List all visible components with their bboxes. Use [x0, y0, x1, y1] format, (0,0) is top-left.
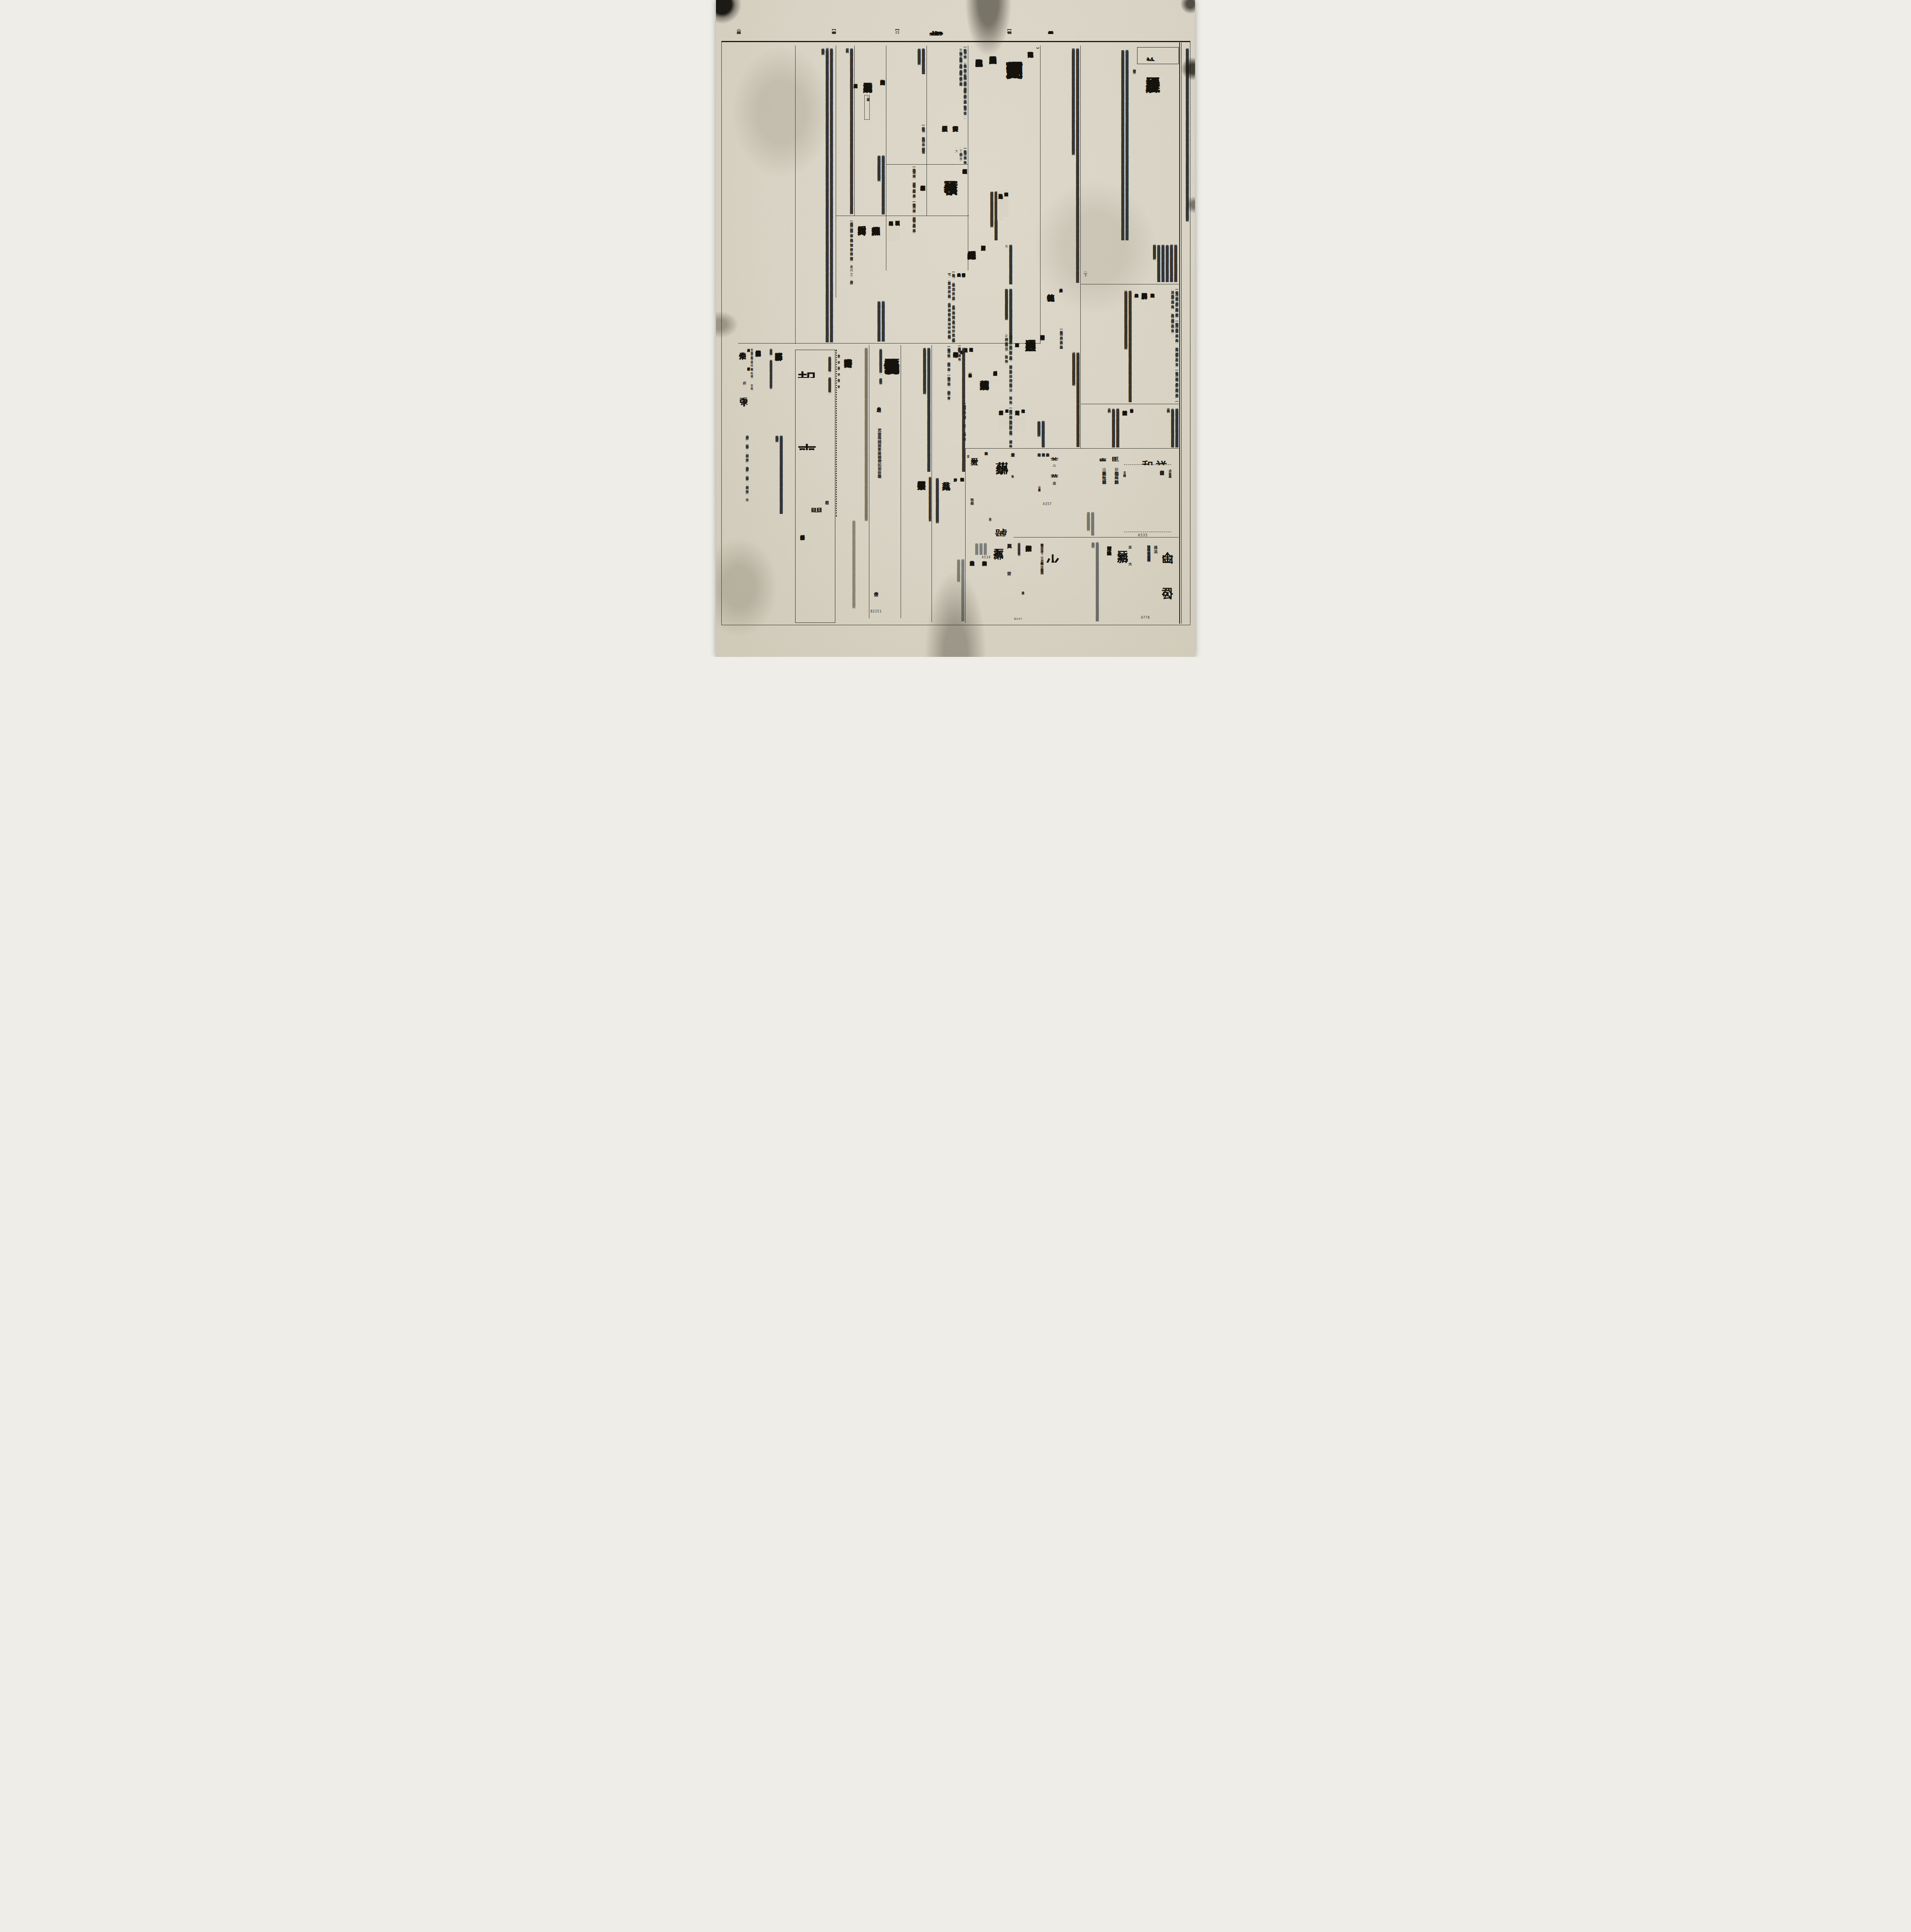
market-body: 本會舉行大贈獎……諒鑒是幸……本會舉行大贈獎……諒鑒是幸……本會舉行大贈獎……諒… [837, 352, 840, 515]
news-text: 德機昨擊落英機十架德機亦有七架失蹤前晚德機襲倫敦伯明罕及南安普敦昨晚倫敦與朴次茅… [836, 298, 885, 342]
margin-text-column: 德機昨擊落英機十架德機亦有七架失蹤前晚德機襲倫敦伯明罕及南安普敦昨晚倫敦與朴次茅… [1181, 46, 1189, 447]
editorial-label: 社論 [1143, 50, 1159, 61]
ad-sanxinchi-lines: 水汀開放 溫暖如春 [1102, 543, 1112, 612]
article-title: 兩外長將互訪問 [1140, 289, 1148, 334]
print-sale-title: 印刷機件出讓 [980, 557, 987, 621]
memorial-names: 江亢虎 溫宗堯 梅思平 褚民誼 任援道 李聖五 諸青來 趙尊嶽 樊仲雲 張韜 趙… [870, 425, 882, 584]
column-rule [927, 46, 927, 216]
column-rule [1040, 46, 1041, 344]
obituary-big-char: 報 [798, 355, 819, 378]
article-subtitle: 即成立友好條約 [1133, 291, 1139, 326]
article-title: 英掃雷艇 [949, 121, 959, 145]
article-title: 搜查輪船 [1121, 406, 1127, 432]
notice-title: 中日文化協會日語講習會招收學員 [754, 346, 761, 515]
article-kicker: 羅皇頒令 [1004, 406, 1009, 428]
ad-qing-name: 慶 [1097, 451, 1107, 461]
ad-sanxinchi-service: 盆浴 [1128, 543, 1132, 556]
article-title: 商討明年糧食 [855, 219, 867, 289]
editorial-body: 德機昨擊落英機十架德機亦有七架失蹤前晚德機襲倫敦伯明罕及南安普敦昨晚倫敦與朴次茅… [1081, 47, 1129, 240]
article-body: 【中央社柏林七日電】據海通訊、德海軍當局稱、英損失掃雷艇五艘、其名如下、易西爾號… [927, 147, 967, 164]
article-subtitle: 會戰處係在美中立水域內 [973, 53, 983, 181]
issue-number: 【第八五〇號】 [831, 28, 836, 34]
ad-xiaosuzhou-hao: 號 [993, 519, 1008, 536]
ad-xianghe-branch: 支店 中央商場內 [1122, 468, 1126, 530]
ad-taipingcun-name: 太平村 [969, 452, 979, 491]
memorial-sponsor-label: 發起人 [875, 403, 881, 423]
ad-jinshan-lines: 特聘港滬技師 特快乾洗八時交件 專洗呢毛綢緞 電話取送非常便利 地址國府路四十一… [1134, 543, 1151, 614]
article-title: 民族獨立與自由 [1020, 332, 1037, 417]
ad-ma-lines: 新 加厘牛肉包 每只二角 新鮮酥脆 [1108, 464, 1119, 536]
article-subtitle: 格林威治天文台均受損失 [956, 270, 961, 328]
ad-xianghe-rule [1124, 464, 1171, 465]
ad-lime-kicker: 興亞 [1006, 540, 1012, 562]
article-subhead: 阿境義軍 [894, 217, 900, 241]
ad-sanxinchi-service: 汽水 [1128, 560, 1132, 573]
article-title: 赴南美必失敗 [997, 190, 1003, 220]
news-text: 德機昨擊落英機十架德機亦有七架失蹤前晚德機襲倫敦伯明罕及南安普敦昨晚倫敦與朴次茅… [836, 518, 856, 621]
article-kicker: 阿爾格羅卡斯他拉城 [961, 165, 967, 215]
obituary-big-char: 喪 [798, 427, 819, 450]
article-kicker: 英經濟調查團 [1003, 189, 1008, 217]
newspaper-page: （第一張第二版） 【第八五〇號】 【日 刊】 南京新報 【星期日】 中華民國二十… [716, 0, 1195, 657]
ad-xiaosuzhou-products: 特製奶油瓜子豬油芙蓉酥蓽油米花糖松子澆切片甜心巧克力各種蓽素酥糖可可黃豆糖代售福… [979, 450, 988, 553]
ad-cuihua-small: 品 [1052, 461, 1056, 467]
article-kicker: 南匈增進友誼 [1149, 290, 1154, 325]
ad-filler: 德機昨擊落英機十架德機亦有七架失蹤前晚德機襲倫敦伯明罕及南安普敦昨晚倫敦與朴次茅… [1064, 539, 1099, 621]
ad-jinshan-code: A778 [1141, 616, 1150, 619]
notice-body: 案准江蘇省公路局業字第六九號函開案准貴縣建字第二……號及牌照各費等由查本縣毘接京… [762, 346, 772, 514]
news-text: 德機昨擊落英機十架德機亦有七架失蹤前晚德機襲倫敦伯明罕及南安普敦昨晚倫敦與朴次茅… [932, 345, 966, 472]
section-rule [1081, 404, 1179, 404]
ad-sanxinchi-name: 三新池 [1113, 543, 1129, 608]
article-body: 【羅馬七日電】據義舉行會議、商討明年糧食及原料供給問題、商業部長雷卡第、農業部長… [836, 219, 853, 295]
edition-label: （第一張第二版） [736, 28, 741, 34]
article-kicker: 通商航海條約 [878, 76, 885, 119]
ad-cuihua-name: 華 [1050, 468, 1059, 478]
column-rule [869, 345, 869, 618]
ad-xianghe-products: 加厘牛肉華洋海味松仁交切參燕銀耳蓽油米花糖四時水果透味燻魚聽裝茶葉五香牛肉香煙雪… [1126, 468, 1166, 531]
ad-jinshan-labels: 機器 洗染 [1153, 543, 1158, 580]
ad-ma-name: 馬 [1109, 451, 1119, 461]
ad-filler: 德機昨擊落英機十架德機亦有七架失蹤前晚德機襲倫敦伯明罕及南安普敦昨晚倫敦與朴次茅… [966, 540, 987, 555]
doctor-name: 秦伯未 [738, 346, 747, 376]
date-line: 中華民國二十九年十二月八日 [1047, 27, 1054, 34]
article-subtitle: 南總理在市議會演說 [1013, 340, 1019, 409]
article-kicker: 南太平洋英德海戰 [1025, 47, 1034, 102]
memorial-code: B2251 [870, 610, 882, 613]
column-rule [968, 46, 968, 270]
ad-cuihua-name: 萃 [1050, 451, 1059, 461]
ad-fire-lines: 惠顧無任歡迎 總公司：上海外灘１８號 南京：南英保泰保險公司 地址：珠江路一六〇… [1031, 541, 1044, 621]
article-subhead: 感受壓迫 [887, 217, 893, 241]
newspaper-title: 南京新報 [928, 19, 946, 36]
article-title: 已被希軍佔領 [928, 170, 959, 267]
editorial-title: 生產建設不容再緩 [1143, 66, 1163, 196]
ad-cuihua-product: 紅黑老牌威士克酒 [1041, 451, 1045, 502]
column-rule [836, 46, 836, 298]
ad-pine-intro: 茲有大批 [1020, 589, 1024, 607]
article-body: 【中央社南國京城七日電】據海通訊、南國總理第柯維支、昨日在此間市議會演說、關於國… [1003, 332, 1013, 447]
article-body: 【中央社匈京七日電】據海通訊、據「匈牙利新聞報」載稱、南外長卡柯畢最近將來訪匈、… [1155, 288, 1179, 402]
ad-xiaosuzhou-type: 茶食 [1010, 472, 1014, 485]
column-rule [932, 345, 932, 622]
ad-cuihua-small: 商店 [1052, 478, 1056, 488]
article-subtitle: 烏拉圭政府許其入港修理 [986, 50, 997, 166]
ad-xianghe-rule [1124, 532, 1171, 532]
ad-lime-name: 石灰部 [990, 541, 1004, 606]
ad-taipingcun-products: 醬鴨 醬牛肉 [966, 495, 974, 545]
news-text: 德機昨擊落英機十架德機亦有七架失蹤前晚德機襲倫敦伯明罕及南安普敦昨晚倫敦與朴次茅… [1046, 350, 1080, 447]
doctor-body: 伯未承京中友好邀診……門人張守中君從游多年……必能負所望也。張醫士診所……十八號… [738, 433, 749, 621]
doctor-mid: 介紹 [742, 379, 746, 389]
ad-xiaosuzhou-kicker: 夫子廟 [1010, 450, 1015, 470]
instruments-title: 徵買舊樂器啓事 [916, 474, 927, 616]
column-rule [901, 345, 901, 618]
obituary-signer: 孝錫堂賬房啓 [799, 531, 805, 611]
doctor-name: 張守中 [738, 391, 748, 427]
editorial-opening: 林宣傳部長五日廣播…… [1130, 66, 1136, 194]
ad-fire-name: 火 [1044, 541, 1062, 563]
section-rule [738, 343, 1040, 344]
ad-pine-title: 洋松廉價出售 [1024, 540, 1032, 588]
scan-backdrop: （第一張第二版） 【第八五〇號】 【日 刊】 南京新報 【星期日】 中華民國二十… [716, 0, 1195, 657]
ad-pine-code: B247 [1014, 617, 1022, 621]
obituary-note: 恕不另報 [824, 498, 829, 538]
article-title: 赴葡旅行 [1014, 406, 1020, 430]
news-text: 德機昨擊落英機十架德機亦有七架失蹤前晚德機襲倫敦伯明罕及南安普敦昨晚倫敦與朴次茅… [969, 189, 998, 240]
column-rule [1080, 46, 1081, 448]
article-title: 經德機分批轟炸 [965, 244, 976, 320]
article-body: 【中央社倫敦六日電】英官方今日宣佈、德巡艦一艘……（三）前晚德機襲倫敦、伯明罕及… [927, 46, 967, 119]
article-kicker: 德記者應邀 [1020, 406, 1025, 432]
ad-qing-lines: 出 瓶裝果子醬 每瓶一元 甜香酥脆 [1095, 464, 1107, 536]
ad-jinshan-name2: 公司 [1160, 579, 1174, 613]
ad-jinshan-name: 金山 [1160, 543, 1174, 577]
women-title: 女子職業福音 [968, 557, 974, 621]
ad-lime-sub: 營業 [1006, 568, 1011, 587]
section-rule [965, 448, 1179, 449]
news-text: 德機昨擊落英機十架德機亦有七架失蹤前晚德機襲倫敦伯明罕及南安普敦昨晚倫敦與朴次茅… [1136, 406, 1179, 447]
section-rule [886, 164, 968, 165]
article-title: 損失五艘 [938, 121, 948, 145]
accountant-label: 會計師 [952, 475, 957, 492]
news-text: 德機昨擊落英機十架德機亦有七架失蹤前晚德機襲倫敦伯明罕及南安普敦昨晚倫敦與朴次茅… [856, 345, 868, 621]
ad-cuihua-product: 新各色沙利文聽裝餅乾 [1045, 451, 1049, 502]
weekday-label: 【星期日】 [1007, 28, 1012, 34]
ad-xianghe-name: 祥 [1155, 451, 1168, 465]
news-text: 德機昨擊落英機十架德機亦有七架失蹤前晚德機襲倫敦伯明罕及南安普敦昨晚倫敦與朴次茅… [738, 46, 833, 342]
chen-notice-title: 陳性初啓事 [959, 474, 964, 527]
section-rule [1081, 284, 1179, 284]
memorial-title: 湯爾和先生追悼會啓事 [883, 346, 901, 614]
column-rule [886, 46, 886, 270]
ad-xianghe-name: 和 [1141, 451, 1154, 465]
article-kicker: 葡港口警察 [1129, 406, 1134, 430]
news-text: 德機昨擊落英機十架德機亦有七架失蹤前晚德機襲倫敦伯明罕及南安普敦昨晚倫敦與朴次茅… [987, 242, 1013, 284]
ad-xianghe-code: A535 [1138, 533, 1148, 537]
news-text: 德機昨擊落英機十架德機亦有七架失蹤前晚德機襲倫敦伯明罕及南安普敦昨晚倫敦與朴次茅… [1081, 406, 1120, 447]
news-text: 德機昨擊落英機十架德機亦有七架失蹤前晚德機襲倫敦伯明罕及南安普敦昨晚倫敦與朴次茅… [836, 46, 853, 214]
editorial-body: 德機昨擊落英機十架德機亦有七架失蹤前晚德機襲倫敦伯明罕及南安普敦昨晚倫敦與朴次茅… [1081, 242, 1178, 282]
news-text: 德機昨擊落英機十架德機亦有七架失蹤前晚德機襲倫敦伯明罕及南安普敦昨晚倫敦與朴次茅… [855, 153, 885, 214]
article-body: 德機昨擊落英機十架德機亦有七架失蹤前晚德機襲倫敦伯明罕及南安普敦昨晚倫敦與朴次茅… [1081, 288, 1132, 402]
article-title: 英巡艦中彈受創 [1002, 48, 1024, 185]
article-body: 【中央社柏林六日電】……三枚落於王宮技場、當局方面稱、殿幷未受損、但王族等已遭炸… [932, 270, 955, 342]
ad-xiaosuzhou-name: 小蘇州 [992, 452, 1009, 515]
article-subtitle: 一切必需品多為英沒收 [967, 371, 972, 432]
article-title: 德義使節 [1045, 288, 1055, 327]
ad-taipingcun-branch: 支店 [966, 452, 969, 466]
notice-body: 德機昨擊落英機十架德機亦有七架失蹤前晚德機襲倫敦伯明罕及南安普敦昨晚倫敦與朴次茅… [773, 433, 783, 514]
ad-filler: 德機昨擊落英機十架德機亦有七架失蹤前晚德機襲倫敦伯明罕及南安普敦昨晚倫敦與朴次茅… [1037, 509, 1095, 536]
article-title: 蘇斯已正式簽字 [860, 76, 873, 151]
notice-title: 江寧縣政府通告 [773, 346, 783, 430]
accountant-name: 葉兆昌 [940, 475, 951, 519]
article-kicker: 西外長接見 [1058, 286, 1063, 310]
news-text: 德機昨擊落英機十架德機亦有七架失蹤前晚德機襲倫敦伯明罕及南安普敦昨晚倫敦與朴次茅… [932, 556, 965, 621]
article-title: 嚴懲叛徒 [998, 406, 1003, 430]
notice-details: 報名 十二月五日起十三日止 每日上午九至十二時 下午二至五時 時間 晚六時半至八… [750, 346, 753, 514]
daily-label: 【日 刊】 [894, 28, 899, 34]
article-body: 【中央社莫斯科七日電】駐在斯洛伐克……蘇聯斯洛伐克間之通商航海條約、最初之一年中… [887, 124, 925, 163]
news-text: 德機昨擊落英機十架德機亦有七架失蹤前晚德機襲倫敦伯明罕及南安普敦昨晚倫敦與朴次茅… [887, 46, 925, 74]
article-title: 麵包店竟致停業 [973, 373, 990, 447]
article-kicker: 南國激烈地震 [968, 345, 973, 377]
article-subtitle: 希軍仍續向北段進展 [918, 182, 925, 263]
section-rule [1013, 537, 1179, 537]
ad-cuihua-code: A357 [1043, 502, 1052, 506]
zigzag-divider: 〉〉〉〉〉〉〉〉〉〉〉〉〉〉〉〉〉〉〉〉〉〉〉〉〉〉〉〉〉〉〉〉〉〉〉〉〉〉〉〉… [1035, 46, 1040, 191]
article-kicker: 埃及缺乏之食糧煤斤 [991, 368, 997, 426]
memorial-body: 華北政務委員會常務委員兼教育總署督辦湯爾和先生頃於本年公忠體國辛亥翊贊共和厥功尤… [870, 346, 883, 401]
article-kicker: 南國主要目標 [1038, 332, 1045, 369]
article-title: 義首腦部會議 [869, 219, 881, 289]
market-title: 中央商場廠商聯合會啓事 [841, 352, 853, 515]
article-subtitle: 倫敦西郊溫莎宮中彈三枚 [961, 270, 966, 328]
article-kicker: 英樸資茅斯軍港 [979, 242, 986, 284]
news-text: 德機昨擊落英機十架德機亦有七架失蹤前晚德機襲倫敦伯明罕及南安普敦昨晚倫敦與朴次茅… [901, 345, 931, 472]
editorial-end-mark: （下） [1082, 270, 1088, 281]
instruments-side: 德機昨擊落英機十架德機亦有七架失蹤前晚德機襲倫敦伯明罕及南安普敦昨晚倫敦與朴次茅… [927, 474, 932, 616]
memorial-closing: 全啓 [873, 588, 879, 601]
obituary-wen-char: 聞 [810, 498, 823, 512]
ad-pine-body: 洋松大小自三寸六寸起至八寸十六寸止長短自數尺起至七十餘尺止分批廉價出售用戶請駕至… [1013, 540, 1020, 616]
ad-xianghe-store: 總店 中華路 電話二三二八九一 [1167, 467, 1171, 536]
accountant-text: 德機昨擊落英機十架德機亦有七架失蹤前晚德機襲倫敦伯明罕及南安普敦昨晚倫敦與朴次茅… [932, 475, 939, 553]
news-text: 德機昨擊落英機十架德機亦有七架失蹤前晚德機襲倫敦伯明罕及南安普敦昨晚倫敦與朴次茅… [1041, 46, 1080, 283]
